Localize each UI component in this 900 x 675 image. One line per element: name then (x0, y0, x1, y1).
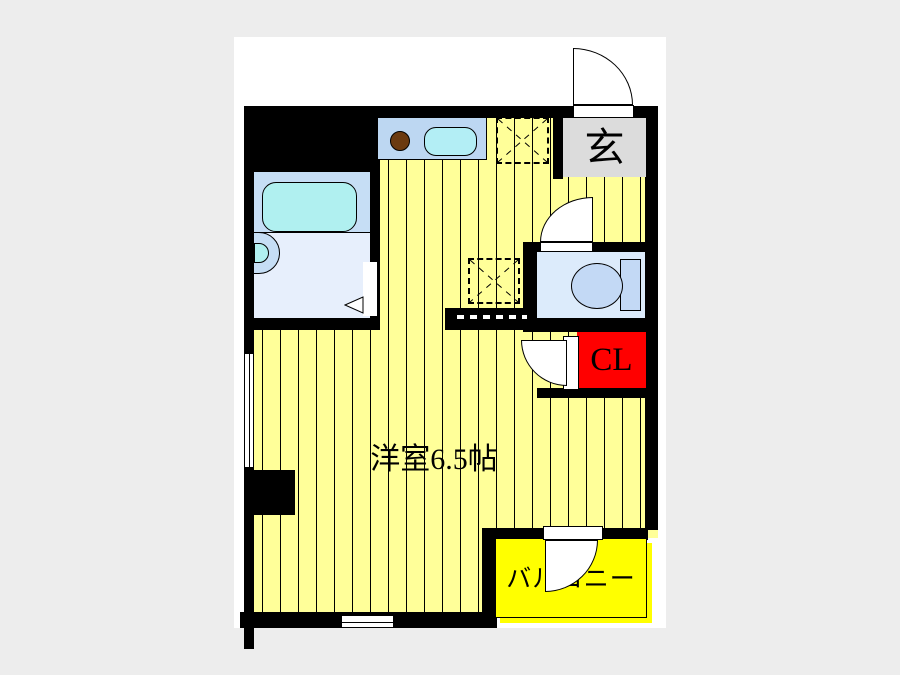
refrigerator-space-cross-icon (498, 119, 547, 162)
entrance-label: 玄 (585, 128, 625, 168)
bathroom-door-icon (363, 262, 377, 316)
entrance-room: 玄 (563, 118, 646, 177)
closet-label: CL (590, 344, 632, 377)
wall-toilet-top-left (523, 242, 540, 252)
wall-bathroom-bottom (244, 318, 380, 330)
wall-top-left-block (244, 106, 380, 172)
toilet-door-leaf-icon (540, 242, 593, 252)
wall-toilet-top-right (593, 242, 658, 252)
gas-burner-icon (390, 131, 410, 151)
pillar (244, 470, 295, 515)
partition-dash-marking (457, 315, 527, 319)
bathroom-door-arrow-icon (344, 296, 365, 315)
toilet-room (537, 252, 645, 318)
main-room-label: 洋室6.5帖 (344, 445, 524, 475)
bathtub-icon (262, 182, 357, 232)
wall-closet-bottom (537, 388, 658, 398)
floor-plan: 玄 CL バルコニー 洋室6.5帖 (234, 37, 666, 628)
kitchen-sink-icon (424, 127, 477, 156)
wall-toilet-bottom (523, 318, 658, 332)
entrance-door-swing-icon (573, 48, 633, 105)
wall-entrance-left (553, 107, 563, 179)
window-bottom-icon (341, 615, 394, 628)
toilet-tank-icon (620, 259, 641, 311)
washer-space-cross-icon (470, 260, 518, 302)
toilet-bowl-icon (571, 263, 623, 309)
balcony-door-leaf-icon (543, 526, 603, 540)
window-bottom-mullion (342, 622, 393, 623)
window-left-mullion (249, 354, 250, 467)
closet: CL (577, 332, 646, 388)
window-left-icon (244, 353, 254, 468)
entrance-door-leaf-icon (573, 105, 634, 118)
refrigerator-space (496, 117, 549, 164)
washer-space (468, 258, 520, 304)
floor-striped-lower (244, 538, 507, 615)
floor-plan-page: { "plan": { "labels": { "entrance": "玄",… (0, 0, 900, 675)
